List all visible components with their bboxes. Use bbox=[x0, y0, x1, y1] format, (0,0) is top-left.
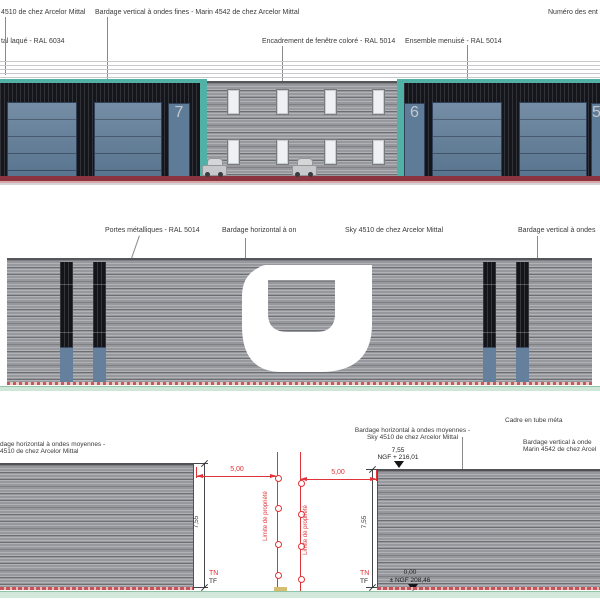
rear-base-red-dotted bbox=[7, 382, 592, 385]
unit-door-5: 5 bbox=[591, 103, 600, 178]
property-limit-label-1: Limite de propriété bbox=[262, 481, 270, 551]
window bbox=[372, 139, 385, 165]
base-shadow bbox=[0, 183, 600, 185]
label-bardage-horizontal-sky: Sky 4510 de chez Arcelor Mittal bbox=[345, 227, 443, 235]
height-dim-left: 7,55 bbox=[193, 507, 201, 537]
sectional-door bbox=[519, 102, 587, 178]
property-marker bbox=[275, 475, 282, 482]
property-line-1 bbox=[277, 452, 278, 592]
height-dim-line-right bbox=[372, 469, 373, 588]
label-bottom-center-2: Sky 4510 de chez Arcelor Mittal bbox=[345, 434, 480, 442]
sectional-door bbox=[432, 102, 502, 178]
ground-red-left bbox=[0, 587, 193, 590]
leader-line bbox=[245, 238, 246, 258]
tf-label-left: TF bbox=[209, 578, 217, 586]
watermark-logo bbox=[232, 264, 372, 374]
dim-arrow bbox=[196, 474, 203, 478]
car bbox=[202, 157, 227, 178]
unit-number-6: 6 bbox=[410, 104, 419, 121]
gable-left bbox=[0, 463, 194, 590]
setback-line-left bbox=[196, 476, 277, 477]
label-numero-entrees: Numéro des ent bbox=[548, 9, 598, 17]
window bbox=[276, 89, 289, 115]
window bbox=[276, 139, 289, 165]
label-laque-ral6034-fragment: tal laqué - RAL 6034 bbox=[1, 38, 65, 46]
metal-door-strip bbox=[93, 262, 106, 382]
metal-door-strip bbox=[60, 262, 73, 382]
roof-lines bbox=[0, 61, 600, 79]
metal-door-strip bbox=[516, 262, 529, 382]
sectional-door bbox=[94, 102, 162, 178]
property-marker bbox=[298, 576, 305, 583]
teal-trim-vertical-right bbox=[397, 79, 404, 177]
unit-number-7: 7 bbox=[175, 104, 184, 121]
tn-label-left: TN bbox=[209, 570, 218, 578]
car bbox=[292, 157, 317, 178]
property-marker bbox=[275, 572, 282, 579]
setback-line-right bbox=[300, 479, 377, 480]
label-bardage-vertical: Bardage vertical à ondes bbox=[518, 227, 595, 235]
label-portes-metalliques: Portes métalliques - RAL 5014 bbox=[105, 227, 200, 235]
dim-arrow bbox=[370, 477, 377, 481]
unit-number-5: 5 bbox=[592, 104, 600, 121]
sectional-door bbox=[7, 102, 77, 178]
property-line-2 bbox=[300, 452, 301, 592]
label-bottom-right-2: Marin 4542 de chez Arcel bbox=[523, 446, 596, 454]
property-marker bbox=[275, 505, 282, 512]
setback-dim-left: 5,00 bbox=[214, 466, 260, 474]
window bbox=[227, 139, 240, 165]
height-dim-right: 7,55 bbox=[361, 507, 369, 537]
unit-door-6: 6 bbox=[404, 103, 425, 178]
property-limit-label-2: Limite de propriété bbox=[302, 495, 310, 565]
window bbox=[372, 89, 385, 115]
unit-door-7: 7 bbox=[168, 103, 190, 178]
level-marker-top bbox=[394, 461, 404, 468]
label-cadre-tube: Cadre en tube méta bbox=[505, 417, 562, 425]
label-encadrement-fenetre: Encadrement de fenêtre coloré - RAL 5014 bbox=[262, 38, 395, 46]
label-bardage-horizontal-frag: Bardage horizontal à on bbox=[222, 227, 296, 235]
level-zero-value: 0,00 bbox=[390, 569, 430, 577]
window bbox=[324, 89, 337, 115]
metal-door-strip bbox=[483, 262, 496, 382]
elevation-sheet: 4510 de chez Arcelor Mittal Bardage vert… bbox=[0, 0, 600, 600]
property-marker bbox=[298, 480, 305, 487]
extension-line bbox=[193, 587, 208, 588]
label-cladding-sky-fragment: 4510 de chez Arcelor Mittal bbox=[1, 9, 85, 17]
tn-label-right: TN bbox=[360, 570, 369, 578]
rear-ground-line bbox=[0, 386, 600, 391]
height-dim-line-left bbox=[204, 463, 205, 588]
label-ensemble-menuise: Ensemble menuisé - RAL 5014 bbox=[405, 38, 502, 46]
tf-label-right: TF bbox=[360, 578, 368, 586]
property-marker bbox=[275, 541, 282, 548]
ground-red-right bbox=[377, 587, 600, 590]
ground-green-band bbox=[0, 591, 600, 598]
window bbox=[324, 139, 337, 165]
label-bardage-vertical-fines: Bardage vertical à ondes fines - Marin 4… bbox=[95, 9, 299, 17]
window bbox=[227, 89, 240, 115]
setback-dim-right: 5,00 bbox=[315, 469, 361, 477]
extension-line bbox=[193, 463, 208, 464]
label-bottom-left-2: 4510 de chez Arcelor Mittal bbox=[0, 448, 78, 456]
